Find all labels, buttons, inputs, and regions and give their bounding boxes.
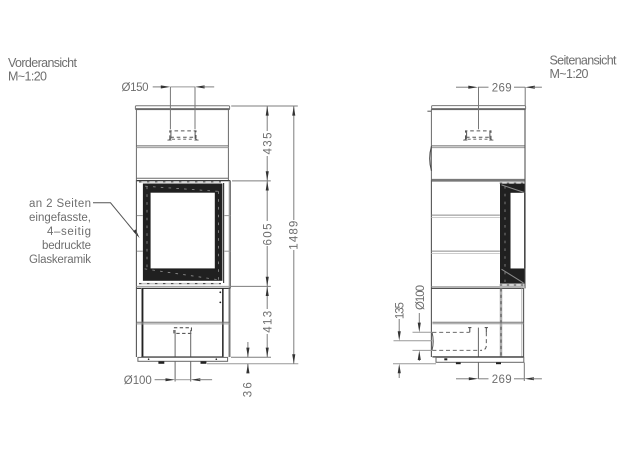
svg-text:435: 435 — [262, 133, 274, 155]
svg-text:an 2 Seiten: an 2 Seiten — [29, 198, 91, 210]
svg-text:413: 413 — [262, 311, 274, 333]
svg-text:Ø100: Ø100 — [124, 375, 152, 387]
svg-text:Ø100: Ø100 — [415, 285, 427, 310]
svg-text:269: 269 — [492, 82, 512, 94]
svg-text:M~1:20: M~1:20 — [550, 67, 589, 81]
svg-text:Vorderansicht: Vorderansicht — [8, 56, 78, 70]
svg-text:bedruckte: bedruckte — [42, 240, 91, 252]
svg-text:36: 36 — [243, 382, 255, 397]
svg-text:Seitenansicht: Seitenansicht — [550, 54, 618, 68]
svg-text:Glaskeramik: Glaskeramik — [29, 254, 91, 266]
svg-text:Ø150: Ø150 — [122, 82, 149, 94]
svg-text:135: 135 — [395, 302, 407, 319]
svg-text:1489: 1489 — [289, 221, 301, 250]
svg-text:605: 605 — [262, 224, 274, 246]
svg-text:269: 269 — [492, 374, 512, 386]
svg-text:M~1:20: M~1:20 — [8, 70, 47, 84]
svg-text:4–seitig: 4–seitig — [47, 226, 91, 238]
svg-text:eingefasste,: eingefasste, — [29, 212, 91, 224]
